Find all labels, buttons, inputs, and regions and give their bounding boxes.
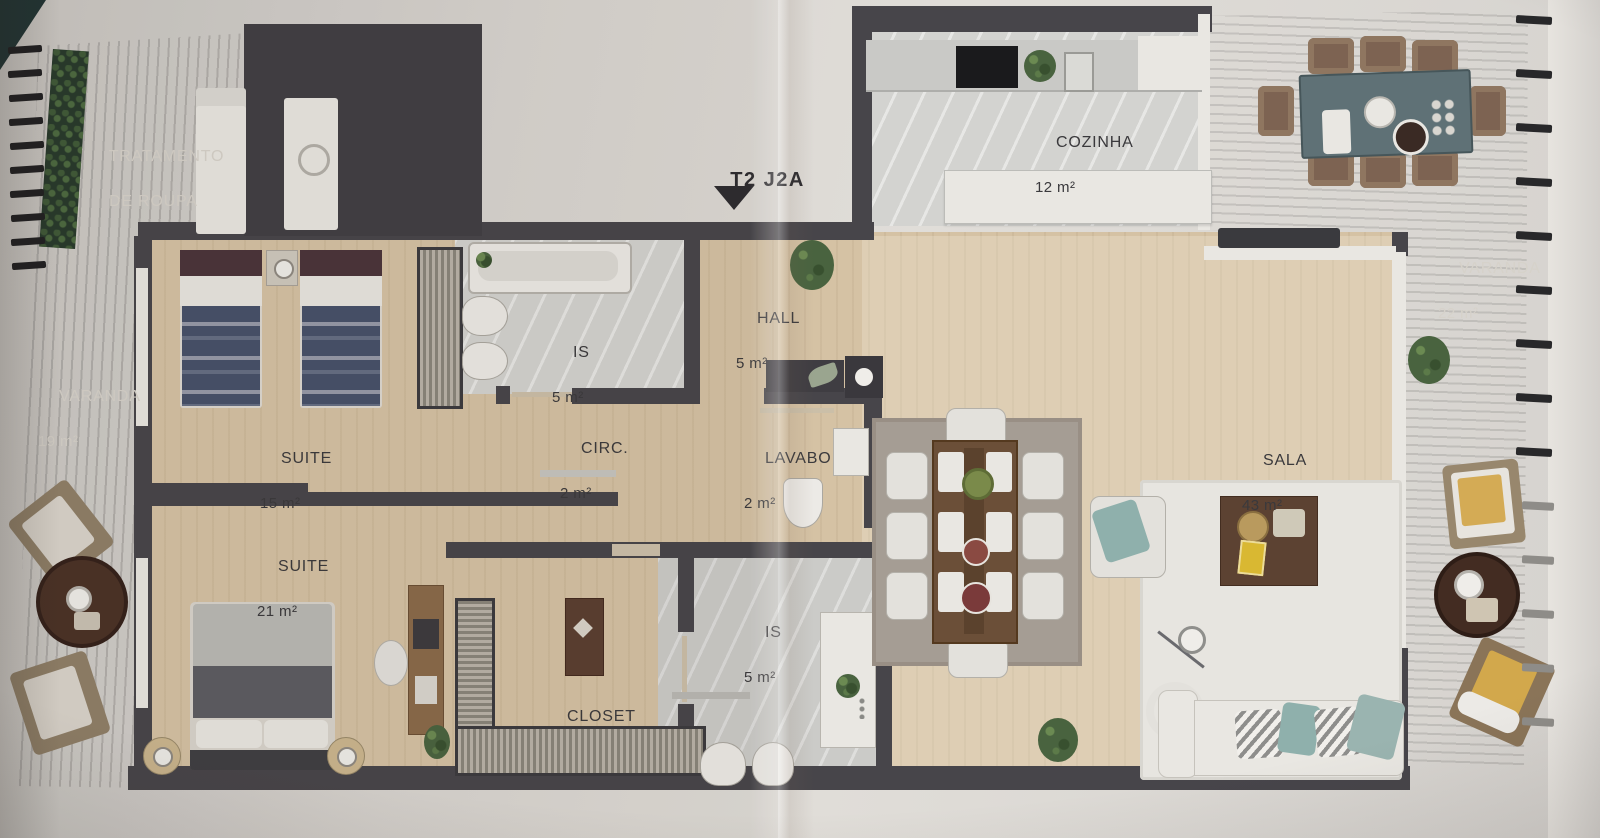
room-area: 5 m²: [552, 387, 590, 408]
room-name: VARANDA: [1459, 260, 1541, 277]
room-label-hall: HALL 5 m²: [736, 286, 800, 419]
room-label-tratamento: TRATAMENTO DE ROUPA: [88, 124, 224, 236]
room-label-lavabo: LAVABO 2 m²: [744, 426, 831, 559]
room-area: 22 m²: [1438, 303, 1541, 324]
railing-tick: [1522, 501, 1554, 511]
room-label-varanda-right: VARANDA 22 m²: [1438, 236, 1541, 369]
room-area: 5 m²: [744, 667, 782, 688]
room-name: COZINHA: [1056, 134, 1134, 151]
room-name: SUITE: [281, 450, 332, 467]
room-label-varanda-left: VARANDA 19 m²: [38, 364, 141, 497]
room-area: 15 m²: [260, 493, 332, 514]
room-area: 19 m²: [38, 431, 141, 452]
room-name: IS: [765, 624, 782, 641]
room-area: 43 m²: [1242, 495, 1307, 516]
railing-tick: [1516, 69, 1552, 79]
room-label-suite-21: SUITE 21 m²: [257, 534, 329, 667]
room-name: SALA: [1263, 452, 1307, 469]
railing-tick: [1516, 15, 1552, 25]
room-label-closet: CLOSET: [546, 684, 636, 751]
room-name: IS: [573, 344, 590, 361]
room-name-line2: DE ROUPA: [109, 193, 198, 210]
floorplan-photo: TRATAMENTO DE ROUPA T2 J2A COZINHA 12 m²…: [0, 0, 1600, 838]
room-area: 5 m²: [736, 353, 800, 374]
room-label-cozinha: COZINHA 12 m²: [1035, 110, 1134, 243]
railing-tick: [1522, 609, 1554, 619]
unit-pointer-triangle: [714, 186, 754, 210]
room-name: VARANDA: [59, 388, 141, 405]
room-area: 12 m²: [1035, 177, 1134, 198]
railing-tick: [1516, 123, 1552, 133]
room-label-circ: CIRC. 2 m²: [560, 416, 629, 549]
room-label-is-bottom: IS 5 m²: [744, 600, 782, 733]
railing-ticks-right: [0, 0, 1600, 838]
room-name: LAVABO: [765, 450, 831, 467]
room-area: 21 m²: [257, 601, 329, 622]
room-area: 2 m²: [560, 483, 629, 504]
room-area: 2 m²: [744, 493, 831, 514]
room-name: CIRC.: [581, 440, 629, 457]
railing-tick: [1516, 393, 1552, 403]
room-name: SUITE: [278, 558, 329, 575]
railing-tick: [1516, 447, 1552, 457]
room-name: HALL: [757, 310, 800, 327]
railing-tick: [1522, 555, 1554, 565]
railing-tick: [1522, 663, 1554, 673]
room-name: CLOSET: [567, 708, 636, 725]
railing-tick: [1522, 717, 1554, 727]
room-label-sala: SALA 43 m²: [1242, 428, 1307, 561]
room-name: TRATAMENTO: [109, 148, 225, 165]
railing-tick: [1516, 177, 1552, 187]
